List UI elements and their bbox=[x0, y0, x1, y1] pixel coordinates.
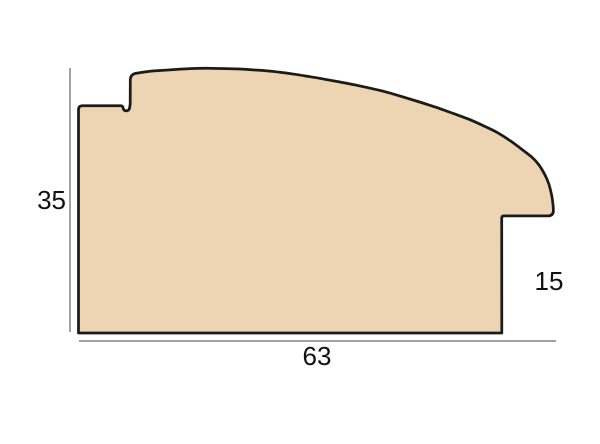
svg-text:63: 63 bbox=[303, 341, 332, 371]
svg-text:15: 15 bbox=[535, 266, 564, 296]
svg-text:35: 35 bbox=[37, 185, 66, 215]
